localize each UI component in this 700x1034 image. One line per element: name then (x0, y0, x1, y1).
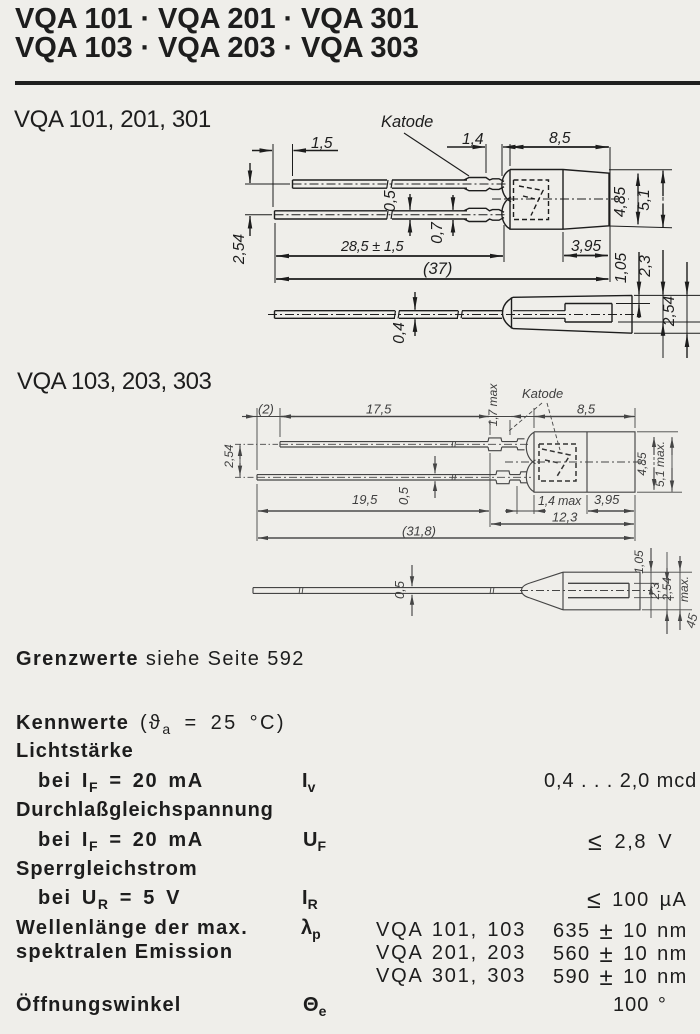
svg-text:4,85: 4,85 (635, 452, 649, 476)
svg-text:17,5: 17,5 (366, 402, 392, 417)
svg-text:4,85: 4,85 (612, 187, 629, 218)
svg-text:8,5: 8,5 (549, 130, 571, 147)
svg-text:max.: max. (677, 576, 691, 602)
svg-text:1,4 max: 1,4 max (538, 494, 582, 508)
svg-text:1,05: 1,05 (632, 550, 646, 574)
svg-text:0,7: 0,7 (429, 221, 446, 244)
svg-text:45: 45 (682, 611, 700, 630)
svg-text:2,54: 2,54 (661, 296, 678, 328)
svg-text:1,7 max: 1,7 max (486, 383, 500, 427)
svg-text:0,5: 0,5 (396, 486, 411, 505)
svg-text:28,5 ± 1,5: 28,5 ± 1,5 (340, 239, 405, 255)
svg-text:5,1 max.: 5,1 max. (653, 441, 667, 487)
svg-text:(2): (2) (258, 402, 274, 417)
svg-text:3,95: 3,95 (571, 238, 602, 255)
svg-text:2,3: 2,3 (637, 255, 654, 278)
svg-text:Katode: Katode (522, 386, 563, 401)
svg-text:Katode: Katode (381, 113, 433, 131)
svg-text:2,54: 2,54 (222, 444, 236, 469)
svg-text:(31,8): (31,8) (402, 524, 436, 539)
svg-text:12,3: 12,3 (552, 510, 578, 525)
svg-text:1,05: 1,05 (613, 253, 630, 284)
svg-text:19,5: 19,5 (352, 492, 378, 507)
svg-text:2,54: 2,54 (660, 577, 674, 602)
svg-text:0,5: 0,5 (392, 580, 407, 599)
svg-text:2,54: 2,54 (231, 234, 248, 266)
svg-text:1,4: 1,4 (462, 131, 484, 148)
svg-text:0,5: 0,5 (382, 190, 399, 212)
svg-text:(37): (37) (423, 260, 452, 278)
svg-text:1,5: 1,5 (311, 135, 333, 152)
svg-text:8,5: 8,5 (577, 402, 596, 417)
svg-text:0,4: 0,4 (391, 322, 408, 344)
svg-text:3,95: 3,95 (594, 492, 620, 507)
svg-text:5,1: 5,1 (636, 189, 653, 211)
